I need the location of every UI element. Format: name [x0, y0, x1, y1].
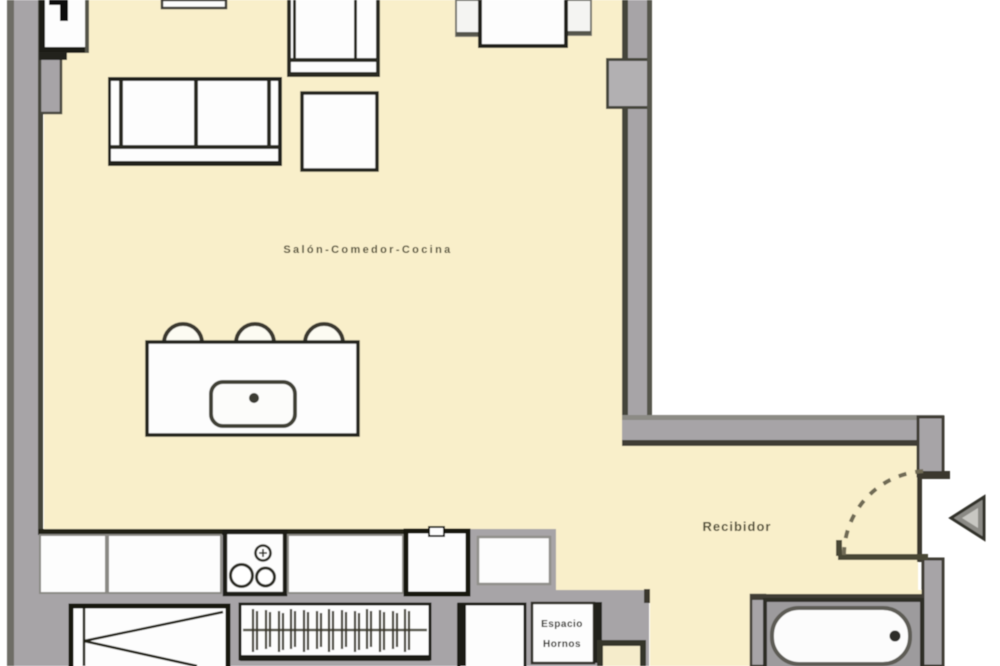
svg-text:Salón-Comedor-Cocina: Salón-Comedor-Cocina	[283, 244, 452, 256]
svg-text:Espacio: Espacio	[541, 619, 583, 630]
svg-text:Recibidor: Recibidor	[703, 519, 772, 534]
svg-text:Hornos: Hornos	[543, 639, 581, 650]
